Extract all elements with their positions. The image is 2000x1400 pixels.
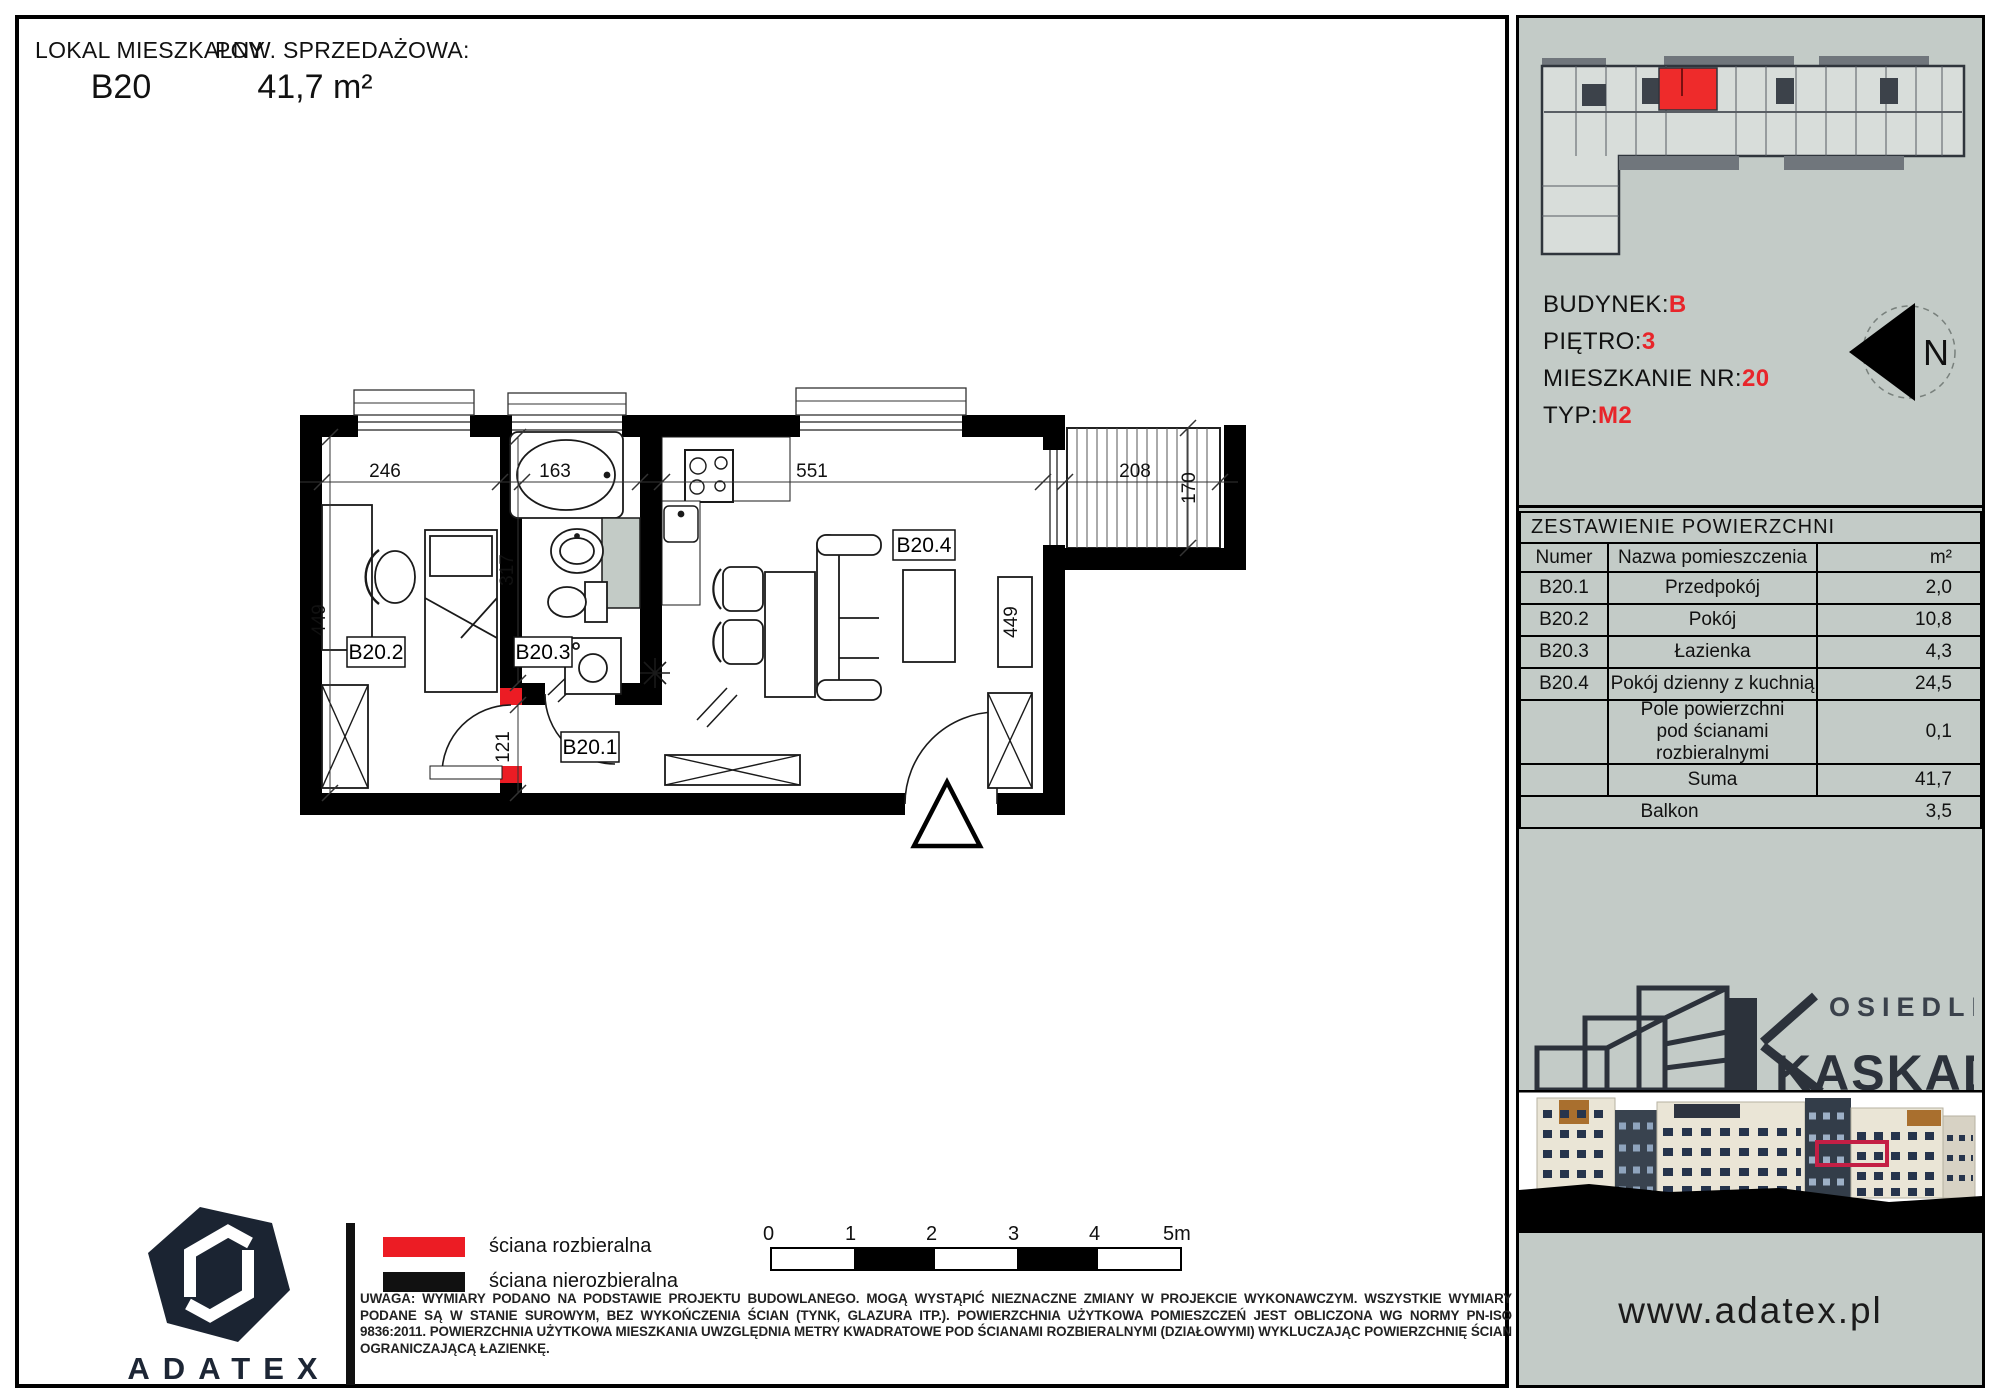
sofa-arm <box>817 680 881 700</box>
scale-bar: 0 1 2 3 4 5m <box>755 1223 1215 1271</box>
scale-tick-1: 1 <box>845 1223 856 1246</box>
row-num: B20.2 <box>1521 605 1609 635</box>
typ-label: TYP: <box>1543 402 1598 429</box>
building-elevation-photo <box>1519 1090 1982 1230</box>
row-num <box>1521 765 1609 795</box>
col-header-nazwa: Nazwa pomieszczenia <box>1609 544 1818 571</box>
row-name: Pole powierzchni pod ścianami rozbieraln… <box>1609 701 1818 763</box>
budynek-label: BUDYNEK: <box>1543 291 1669 318</box>
row-name: Pokój <box>1609 605 1818 635</box>
sofa-arm <box>817 535 881 555</box>
mieszkanie-label: MIESZKANIE NR: <box>1543 365 1742 392</box>
balcony-door <box>1043 450 1065 545</box>
north-letter: N <box>1923 332 1949 373</box>
row-area: 0,1 <box>1818 701 1980 763</box>
pietro-value: 3 <box>1642 328 1656 355</box>
col-header-m2: m² <box>1818 544 1980 571</box>
row-area: 24,5 <box>1818 669 1980 699</box>
toilet <box>548 587 586 617</box>
table-row: B20.3 Łazienka 4,3 <box>1521 637 1980 669</box>
dim-hall-height: 121 <box>493 731 514 763</box>
section-divider <box>1519 505 1982 508</box>
adatex-logo-icon <box>115 1195 345 1350</box>
dim-balcony-height: 170 <box>1179 472 1200 504</box>
room-label-hall: B20.1 <box>563 736 618 759</box>
typ-value: M2 <box>1598 402 1632 429</box>
row-num: B20.1 <box>1521 573 1609 603</box>
mini-floor-plan <box>1524 26 1976 271</box>
building-info: BUDYNEK:B PIĘTRO:3 MIESZKANIE NR:20 TYP:… <box>1543 286 1769 434</box>
scale-tick-0: 0 <box>763 1223 774 1246</box>
balkon-label: Balkon <box>1521 797 1818 827</box>
dining-table <box>765 572 815 697</box>
pietro-label: PIĘTRO: <box>1543 328 1642 355</box>
sales-area-value: 41,7 m² <box>215 68 415 107</box>
row-num <box>1521 701 1609 763</box>
suma-value: 41,7 <box>1818 765 1980 795</box>
entrance <box>905 712 997 846</box>
plan-sheet: LOKAL MIESZKALNY B20 POW. SPRZEDAŻOWA: 4… <box>15 15 1509 1388</box>
toilet-tank <box>585 582 607 622</box>
balcony <box>1065 425 1246 570</box>
dim-living-width: 551 <box>796 461 828 482</box>
unit-label: LOKAL MIESZKALNY <box>35 37 207 64</box>
scale-tick-3: 3 <box>1008 1223 1019 1246</box>
scale-tick-5m: 5m <box>1163 1223 1191 1246</box>
area-table: ZESTAWIENIE POWIERZCHNI Numer Nazwa pomi… <box>1519 511 1982 829</box>
adatex-logo-text: ADATEX <box>79 1351 379 1387</box>
legend-swatch-removable <box>383 1237 465 1257</box>
unit-header: LOKAL MIESZKALNY B20 <box>35 37 207 107</box>
room-label-bedroom: B20.2 <box>349 641 404 664</box>
row-num: B20.3 <box>1521 637 1609 667</box>
row-area: 2,0 <box>1818 573 1980 603</box>
dim-bath-width: 163 <box>539 461 571 482</box>
room-label-bathroom: B20.3 <box>516 641 571 664</box>
sales-area-label: POW. SPRZEDAŻOWA: <box>215 37 415 64</box>
dim-room-height: 449 <box>309 604 330 636</box>
unit-id: B20 <box>35 68 207 107</box>
legend-divider-bar <box>346 1223 355 1385</box>
scale-tick-2: 2 <box>926 1223 937 1246</box>
stove <box>685 450 733 502</box>
balkon-value: 3,5 <box>1818 797 1980 827</box>
table-row: B20.4 Pokój dzienny z kuchnią 24,5 <box>1521 669 1980 701</box>
row-area: 10,8 <box>1818 605 1980 635</box>
legend-label-removable: ściana rozbieralna <box>489 1235 651 1258</box>
row-area: 4,3 <box>1818 637 1980 667</box>
row-name: Łazienka <box>1609 637 1818 667</box>
sidebar-panel: BUDYNEK:B PIĘTRO:3 MIESZKANIE NR:20 TYP:… <box>1516 15 1985 1388</box>
north-compass-icon: N <box>1849 290 1977 418</box>
suma-label: Suma <box>1609 765 1818 795</box>
legend-swatch-fixed <box>383 1272 465 1292</box>
dim-room-width: 246 <box>369 461 401 482</box>
table-row: B20.1 Przedpokój 2,0 <box>1521 573 1980 605</box>
dim-living-height: 449 <box>1001 606 1022 638</box>
dining-chair <box>723 620 763 664</box>
legend-label-fixed: ściana nierozbieralna <box>489 1270 678 1293</box>
table-row-walls: Pole powierzchni pod ścianami rozbieraln… <box>1521 701 1980 765</box>
kaskada-logo: OSIEDLE KASKADA <box>1527 970 1974 1110</box>
row-num: B20.4 <box>1521 669 1609 699</box>
table-header-row: Numer Nazwa pomieszczenia m² <box>1521 544 1980 573</box>
tv-table <box>903 570 955 662</box>
living-furniture <box>640 437 1032 788</box>
table-row: B20.2 Pokój 10,8 <box>1521 605 1980 637</box>
row-name: Pokój dzienny z kuchnią <box>1609 669 1818 699</box>
area-table-title: ZESTAWIENIE POWIERZCHNI <box>1521 513 1980 544</box>
table-row-suma: Suma 41,7 <box>1521 765 1980 797</box>
website-link[interactable]: www.adatex.pl <box>1519 1230 1982 1388</box>
dining-chair <box>723 567 763 611</box>
row-name: Przedpokój <box>1609 573 1818 603</box>
dim-bath-height: 317 <box>497 554 518 586</box>
dim-balcony-width: 208 <box>1119 461 1151 482</box>
chair <box>375 551 415 603</box>
light-symbol <box>640 658 670 688</box>
room-label-living: B20.4 <box>897 534 952 557</box>
area-header: POW. SPRZEDAŻOWA: 41,7 m² <box>215 37 415 107</box>
table-row-balkon: Balkon 3,5 <box>1521 797 1980 827</box>
floor-plan: 246 163 551 208 449 317 121 449 170 B20.… <box>230 330 1270 890</box>
scale-tick-4: 4 <box>1089 1223 1100 1246</box>
osiedle-text: OSIEDLE <box>1829 992 1974 1022</box>
sofa-back <box>817 535 839 700</box>
col-header-numer: Numer <box>1521 544 1609 571</box>
budynek-value: B <box>1669 291 1687 318</box>
highlighted-unit <box>1659 68 1717 110</box>
mieszkanie-value: 20 <box>1742 365 1770 392</box>
disclaimer-note: UWAGA: WYMIARY PODANO NA PODSTAWIE PROJE… <box>360 1291 1512 1357</box>
